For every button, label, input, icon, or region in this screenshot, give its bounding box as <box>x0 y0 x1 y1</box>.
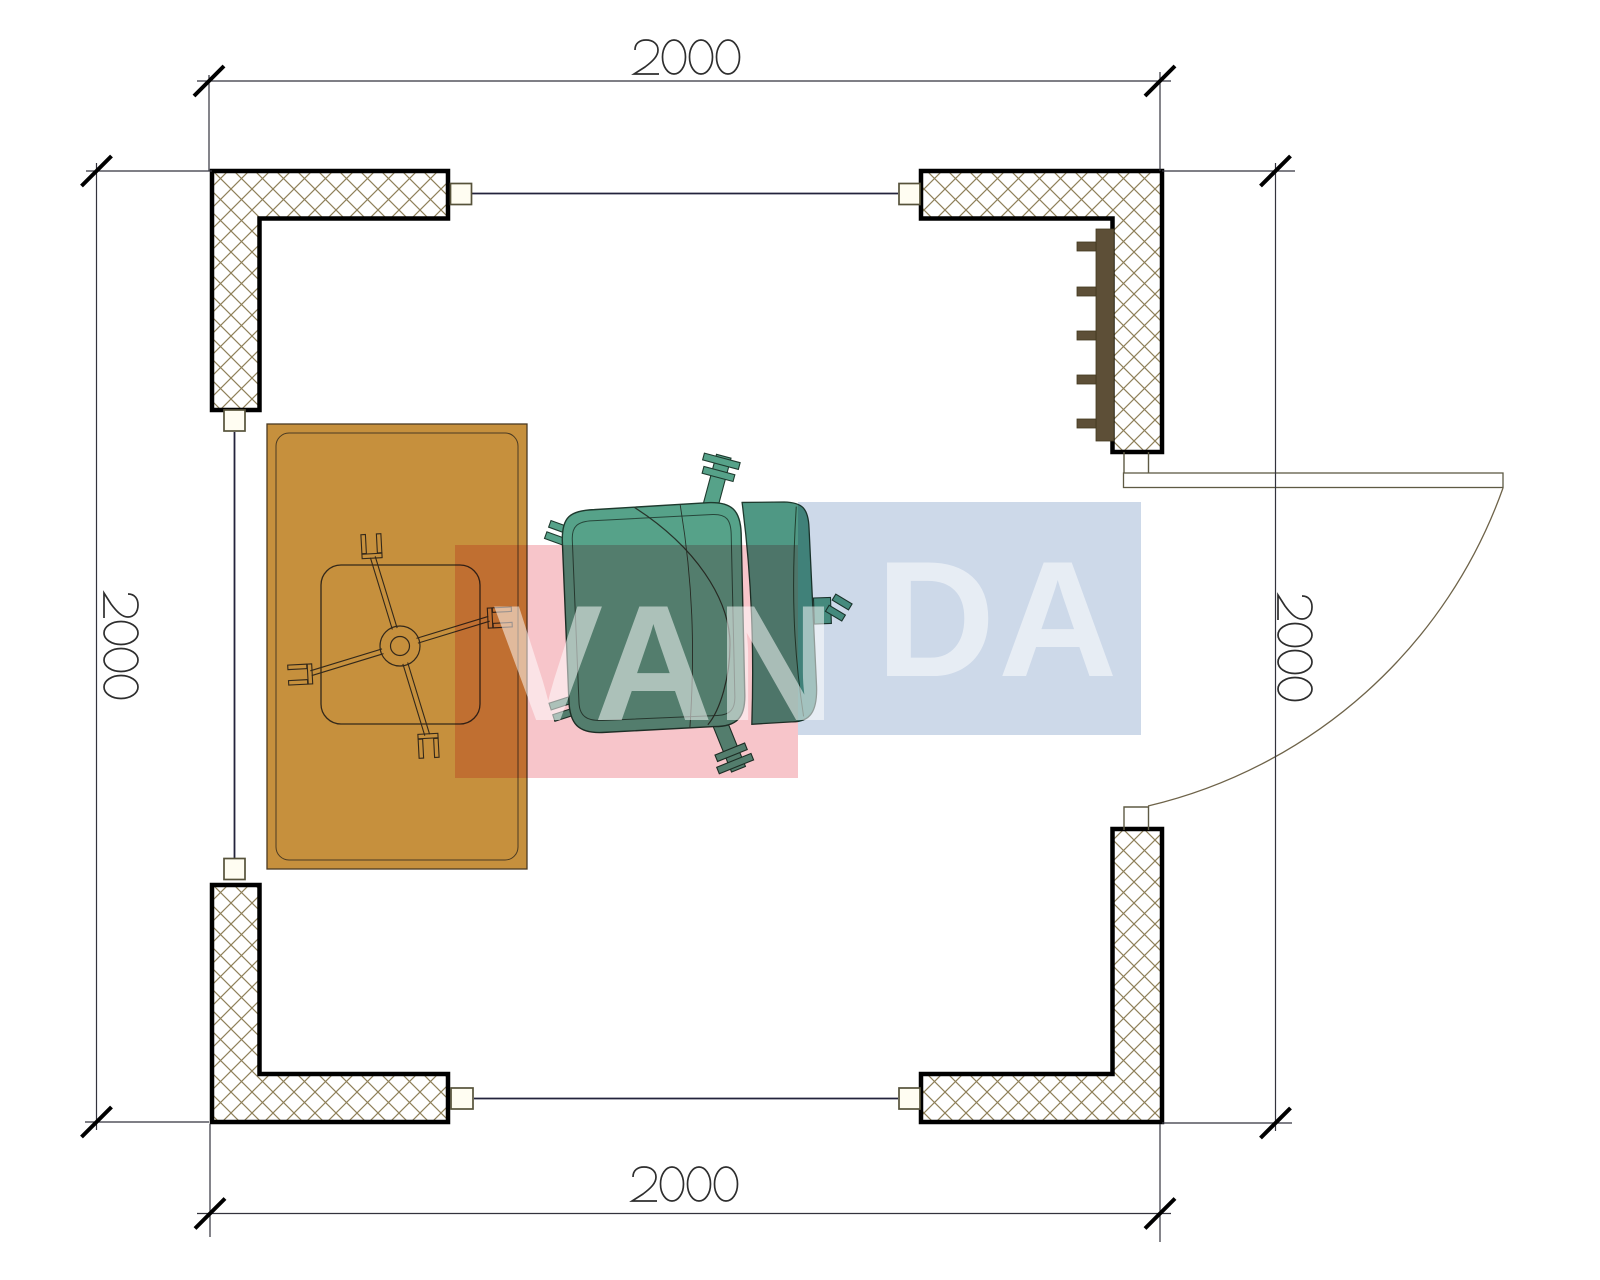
svg-text:DA: DA <box>876 527 1120 711</box>
svg-text:VAN: VAN <box>493 571 838 755</box>
